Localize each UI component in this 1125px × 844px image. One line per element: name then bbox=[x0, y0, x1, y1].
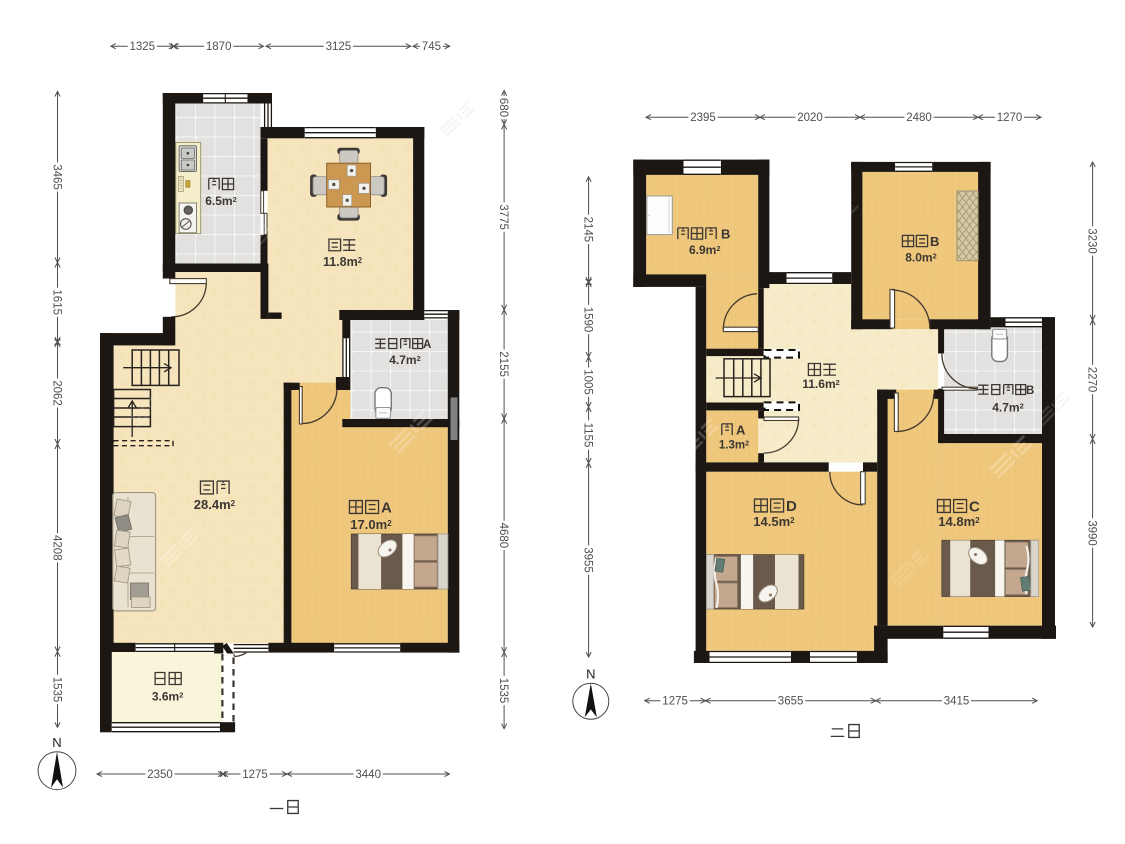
svg-text:3990: 3990 bbox=[1086, 520, 1098, 546]
svg-text:1870: 1870 bbox=[206, 41, 232, 53]
svg-text:3.6m2: 3.6m2 bbox=[152, 690, 183, 704]
svg-text:680: 680 bbox=[497, 98, 509, 117]
svg-text:3775: 3775 bbox=[497, 204, 509, 230]
svg-text:N: N bbox=[586, 666, 595, 681]
svg-text:1270: 1270 bbox=[997, 112, 1023, 124]
svg-text:28.4m2: 28.4m2 bbox=[194, 497, 236, 512]
svg-text:4.7m2: 4.7m2 bbox=[992, 401, 1023, 415]
svg-text:B: B bbox=[1026, 385, 1034, 397]
svg-text:1590: 1590 bbox=[582, 307, 594, 333]
svg-text:C: C bbox=[969, 499, 980, 516]
svg-text:11.6m2: 11.6m2 bbox=[802, 377, 840, 391]
svg-text:2145: 2145 bbox=[582, 217, 594, 243]
svg-text:2155: 2155 bbox=[497, 351, 509, 377]
svg-text:A: A bbox=[736, 423, 746, 438]
svg-text:745: 745 bbox=[422, 41, 441, 53]
svg-text:1535: 1535 bbox=[497, 678, 509, 704]
svg-text:B: B bbox=[930, 234, 939, 249]
svg-text:1155: 1155 bbox=[582, 423, 594, 448]
svg-text:3955: 3955 bbox=[582, 547, 594, 573]
svg-text:2270: 2270 bbox=[1086, 367, 1098, 393]
svg-text:4680: 4680 bbox=[497, 523, 509, 549]
svg-text:6.5m2: 6.5m2 bbox=[205, 194, 236, 208]
svg-text:2062: 2062 bbox=[51, 380, 63, 406]
svg-text:N: N bbox=[52, 735, 61, 750]
svg-text:D: D bbox=[786, 498, 797, 515]
svg-text:1005: 1005 bbox=[582, 369, 594, 395]
svg-text:8.0m2: 8.0m2 bbox=[905, 251, 936, 265]
svg-text:A: A bbox=[423, 339, 431, 351]
svg-text:3655: 3655 bbox=[778, 696, 804, 708]
svg-text:2350: 2350 bbox=[147, 769, 173, 781]
svg-text:14.8m2: 14.8m2 bbox=[938, 514, 980, 529]
svg-text:2480: 2480 bbox=[906, 112, 932, 124]
svg-text:1275: 1275 bbox=[242, 769, 268, 781]
svg-text:3465: 3465 bbox=[51, 164, 63, 190]
svg-text:2395: 2395 bbox=[690, 112, 716, 124]
svg-text:B: B bbox=[721, 227, 730, 242]
svg-text:2020: 2020 bbox=[797, 112, 823, 124]
svg-text:11.8m2: 11.8m2 bbox=[323, 255, 363, 269]
svg-text:3230: 3230 bbox=[1086, 228, 1098, 254]
svg-text:1.3m2: 1.3m2 bbox=[719, 440, 749, 452]
svg-text:1325: 1325 bbox=[130, 41, 156, 53]
svg-text:17.0m2: 17.0m2 bbox=[350, 517, 392, 532]
svg-text:1275: 1275 bbox=[662, 696, 688, 708]
svg-text:1535: 1535 bbox=[51, 677, 63, 703]
svg-text:3440: 3440 bbox=[355, 769, 381, 781]
svg-text:A: A bbox=[381, 500, 392, 517]
svg-text:6.9m2: 6.9m2 bbox=[689, 243, 720, 257]
svg-text:1615: 1615 bbox=[51, 289, 63, 315]
svg-text:14.5m2: 14.5m2 bbox=[753, 514, 795, 529]
svg-text:4.7m2: 4.7m2 bbox=[389, 353, 420, 367]
svg-text:3415: 3415 bbox=[944, 696, 970, 708]
svg-text:3125: 3125 bbox=[326, 41, 352, 53]
svg-text:4208: 4208 bbox=[51, 535, 63, 561]
